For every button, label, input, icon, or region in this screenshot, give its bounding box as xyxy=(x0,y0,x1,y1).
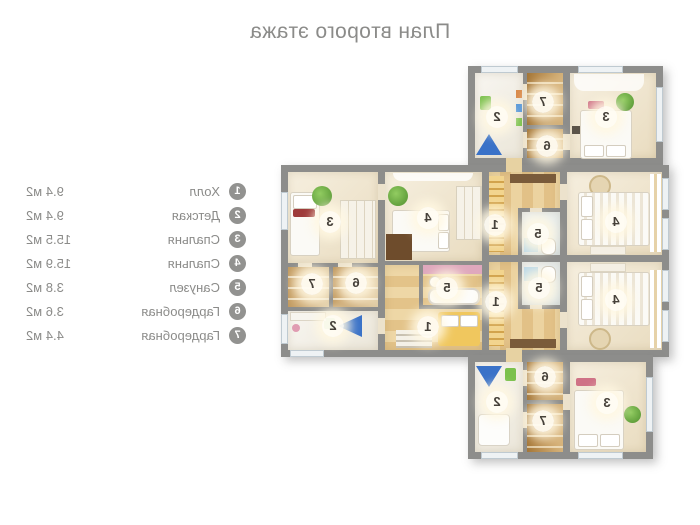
room-number-badge: 6 xyxy=(345,272,367,294)
shelf-toy xyxy=(516,90,522,98)
door-opening xyxy=(563,394,570,410)
door-opening xyxy=(563,134,570,150)
door-opening xyxy=(523,84,527,100)
legend-item-number: 2 xyxy=(229,207,246,224)
room-number-badge: 1 xyxy=(484,214,506,236)
clothes-rack xyxy=(510,339,556,348)
bed-pillow xyxy=(581,299,593,320)
bed-pillow xyxy=(581,219,593,240)
dark-closet xyxy=(386,234,412,260)
legend-item: 4 Спальня 15.9 м2 xyxy=(26,251,246,275)
room-number-badge: 4 xyxy=(605,289,627,311)
pink-rug xyxy=(576,378,596,386)
room-number-badge: 2 xyxy=(486,106,508,128)
window xyxy=(481,452,518,459)
drapery xyxy=(393,173,473,181)
wardrobe xyxy=(456,186,482,240)
legend-item-name: Гардеробная xyxy=(141,328,220,343)
legend-item-number: 7 xyxy=(229,327,246,344)
bench xyxy=(590,246,626,255)
door-opening xyxy=(506,158,522,172)
legend-item: 7 Гардеробная 4.4 м2 xyxy=(26,323,246,347)
legend-item-area: 3.6 м2 xyxy=(26,304,64,319)
round-chair xyxy=(589,328,611,350)
bed-pillow xyxy=(438,232,449,249)
window xyxy=(662,310,669,342)
page-title: План второго этажа xyxy=(0,20,700,44)
pink-wall xyxy=(423,265,482,274)
room-number-badge: 7 xyxy=(532,410,554,432)
room-number-badge: 6 xyxy=(534,366,556,388)
shelf-toy xyxy=(516,104,522,112)
door-opening xyxy=(378,318,385,334)
green-rug xyxy=(505,368,516,381)
drapery xyxy=(574,74,644,91)
nightstand xyxy=(572,126,580,134)
room-number-badge: 6 xyxy=(536,135,558,157)
door-opening xyxy=(560,184,567,200)
bed-pillow xyxy=(578,434,598,447)
shelf-toy xyxy=(516,118,522,126)
bed-pillow xyxy=(581,276,593,297)
cabinet xyxy=(290,312,326,321)
curtain xyxy=(650,174,662,252)
window xyxy=(656,87,663,142)
wall xyxy=(419,305,482,309)
room-number-badge: 2 xyxy=(322,315,344,337)
door-opening xyxy=(523,370,527,386)
room-number-badge: 7 xyxy=(301,273,323,295)
bed-pillow xyxy=(438,214,449,231)
legend-item-area: 9.4 м2 xyxy=(26,208,64,223)
door-opening xyxy=(560,312,567,328)
legend-item-name: Холл xyxy=(189,184,220,199)
bed-pillow xyxy=(606,145,626,157)
door-opening xyxy=(298,263,312,267)
window xyxy=(662,218,669,250)
daybed-pillow xyxy=(460,315,478,327)
door-opening xyxy=(530,208,542,212)
room-number-badge: 5 xyxy=(528,277,550,299)
legend-item-name: Спальня xyxy=(168,256,220,271)
legend-item: 3 Спальня 15.5 м2 xyxy=(26,227,246,251)
window xyxy=(481,66,518,73)
room-number-badge: 3 xyxy=(319,211,341,233)
legend-item: 1 Холл 9.4 м2 xyxy=(26,179,246,203)
plant xyxy=(624,406,641,423)
daybed-pillow xyxy=(441,315,459,327)
door-opening xyxy=(506,348,522,362)
floor-plan: 2 7 6 3 3 7 6 2 4 5 1 1 5 4 1 5 4 2 6 7 … xyxy=(278,62,670,460)
legend-item-area: 15.9 м2 xyxy=(26,256,71,271)
legend-item-area: 3.8 м2 xyxy=(26,280,64,295)
legend-item-number: 3 xyxy=(229,231,246,248)
plant xyxy=(616,93,634,111)
wall xyxy=(419,265,423,305)
window xyxy=(578,452,623,459)
pink-lamp xyxy=(292,324,300,332)
bed-pillow xyxy=(581,196,593,217)
door-opening xyxy=(378,184,385,200)
door-opening xyxy=(530,305,542,309)
wall xyxy=(518,212,522,255)
room-number-badge: 4 xyxy=(605,211,627,233)
legend-item-name: Спальня xyxy=(168,232,220,247)
room-number-badge: 3 xyxy=(595,106,617,128)
legend-item: 2 Детская 9.4 м2 xyxy=(26,203,246,227)
legend-item-number: 4 xyxy=(229,255,246,272)
room-number-badge: 5 xyxy=(436,277,458,299)
wall xyxy=(518,262,522,305)
window xyxy=(578,66,623,73)
window xyxy=(281,192,288,230)
curtain xyxy=(650,270,662,348)
room-number-badge: 5 xyxy=(527,223,549,245)
room-number-badge: 3 xyxy=(596,392,618,414)
legend-item-area: 15.5 м2 xyxy=(26,232,71,247)
legend-item-name: Гардеробная xyxy=(141,304,220,319)
plant xyxy=(388,186,408,206)
window xyxy=(281,314,288,344)
door-opening xyxy=(523,132,527,148)
legend-item-number: 5 xyxy=(229,279,246,296)
room-number-badge: 1 xyxy=(417,316,439,338)
clothes-rack xyxy=(510,174,556,183)
room-number-badge: 4 xyxy=(417,207,439,229)
legend-item: 6 Гардеробная 3.6 м2 xyxy=(26,299,246,323)
legend-item-number: 6 xyxy=(229,303,246,320)
legend-item-name: Детская xyxy=(172,208,220,223)
window xyxy=(290,350,324,357)
dresser xyxy=(478,414,510,446)
play-tent xyxy=(476,366,502,387)
legend-item-number: 1 xyxy=(229,183,246,200)
room-number-badge: 7 xyxy=(532,91,554,113)
legend: 1 Холл 9.4 м2 2 Детская 9.4 м2 3 Спальня… xyxy=(26,179,246,347)
bed-pillow xyxy=(584,145,604,157)
door-opening xyxy=(338,263,352,267)
window xyxy=(646,377,653,432)
legend-item: 5 Санузел 3.8 м2 xyxy=(26,275,246,299)
plant xyxy=(312,186,332,206)
legend-item-area: 9.4 м2 xyxy=(26,184,64,199)
door-opening xyxy=(523,412,527,428)
play-tent xyxy=(476,134,502,155)
bench xyxy=(590,263,626,272)
legend-item-name: Санузел xyxy=(169,280,220,295)
wardrobe xyxy=(340,200,376,259)
window xyxy=(662,178,669,210)
bed-pillow xyxy=(600,434,620,447)
room-number-badge: 2 xyxy=(486,391,508,413)
legend-item-area: 4.4 м2 xyxy=(26,328,64,343)
room-number-badge: 1 xyxy=(485,291,507,313)
accent-pillow xyxy=(293,209,315,217)
window xyxy=(662,270,669,302)
